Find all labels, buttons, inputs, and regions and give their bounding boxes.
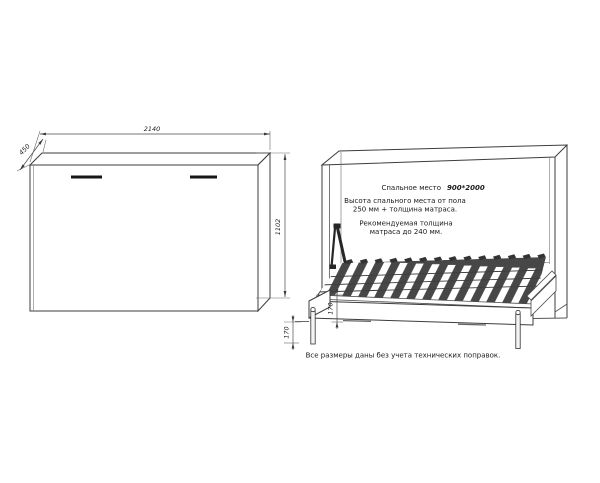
mattress-note-line1: Рекомендуемая толщина [359, 220, 452, 228]
footer-note: Все размеры даны без учета технических п… [306, 352, 501, 360]
drawing-sheet: 2140 450 1102 Спальное место [0, 0, 600, 483]
height-note-line2: 250 мм + толщина матраса. [353, 206, 457, 214]
mattress-note-line2: матраса до 240 мм. [370, 228, 442, 236]
left-handle [71, 176, 102, 179]
cabinet-front-panel [30, 165, 258, 311]
dim-floor-clearance-label: 170 [283, 326, 291, 338]
left-leg [311, 311, 315, 344]
dim-depth-label: 450 [17, 142, 31, 156]
dim-frame-height-label: 170 [327, 302, 335, 314]
left-leg-pivot [311, 307, 315, 311]
cabinet-top-face [30, 153, 270, 165]
wall-bed-technical-drawing: 2140 450 1102 Спальное место [0, 0, 600, 483]
dim-width-label: 2140 [144, 125, 161, 133]
sleeping-area-label: Спальное место [381, 184, 441, 192]
right-handle [190, 176, 217, 179]
cabinet-side-face [258, 153, 270, 311]
right-leg-pivot [516, 310, 520, 314]
open-view: Спальное место 900*2000 Высота спального… [283, 145, 569, 350]
dimension-floor-clearance: 170 [283, 315, 302, 350]
height-note-line1: Высота спального места от пола [344, 197, 466, 205]
dim-height-label: 1102 [274, 219, 282, 236]
closed-view [30, 153, 270, 311]
sleeping-area-value: 900*2000 [447, 184, 485, 192]
right-leg [516, 314, 520, 349]
gas-piston-mechanism [330, 224, 348, 270]
open-cabinet-top-face [322, 145, 567, 165]
interior-annotations: Спальное место 900*2000 Высота спального… [344, 184, 485, 236]
